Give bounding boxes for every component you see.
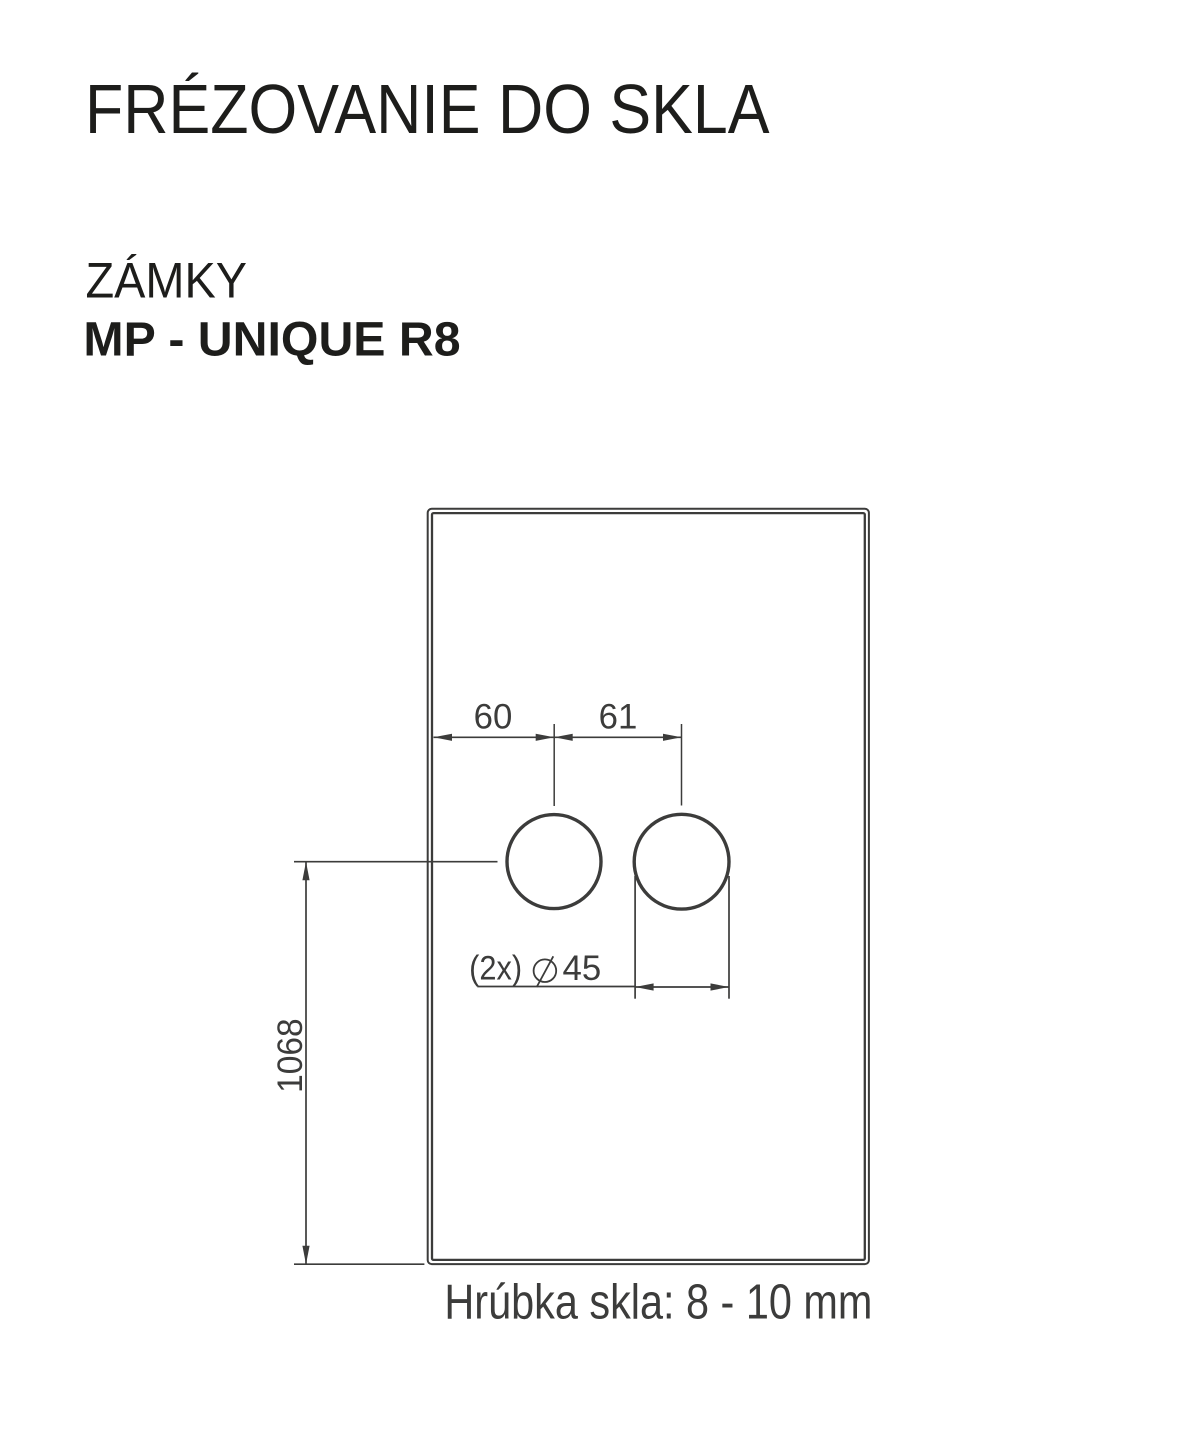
svg-text:ZÁMKY: ZÁMKY	[86, 252, 248, 308]
svg-text:(2x): (2x)	[469, 949, 522, 987]
svg-text:Hrúbka skla: 8 - 10 mm: Hrúbka skla: 8 - 10 mm	[444, 1276, 872, 1330]
svg-text:45: 45	[563, 949, 602, 988]
svg-text:61: 61	[599, 697, 638, 736]
svg-text:60: 60	[474, 697, 513, 736]
svg-text:1068: 1068	[271, 1018, 310, 1093]
svg-text:MP - UNIQUE R8: MP - UNIQUE R8	[83, 312, 460, 366]
svg-text:FRÉZOVANIE DO SKLA: FRÉZOVANIE DO SKLA	[85, 70, 770, 148]
